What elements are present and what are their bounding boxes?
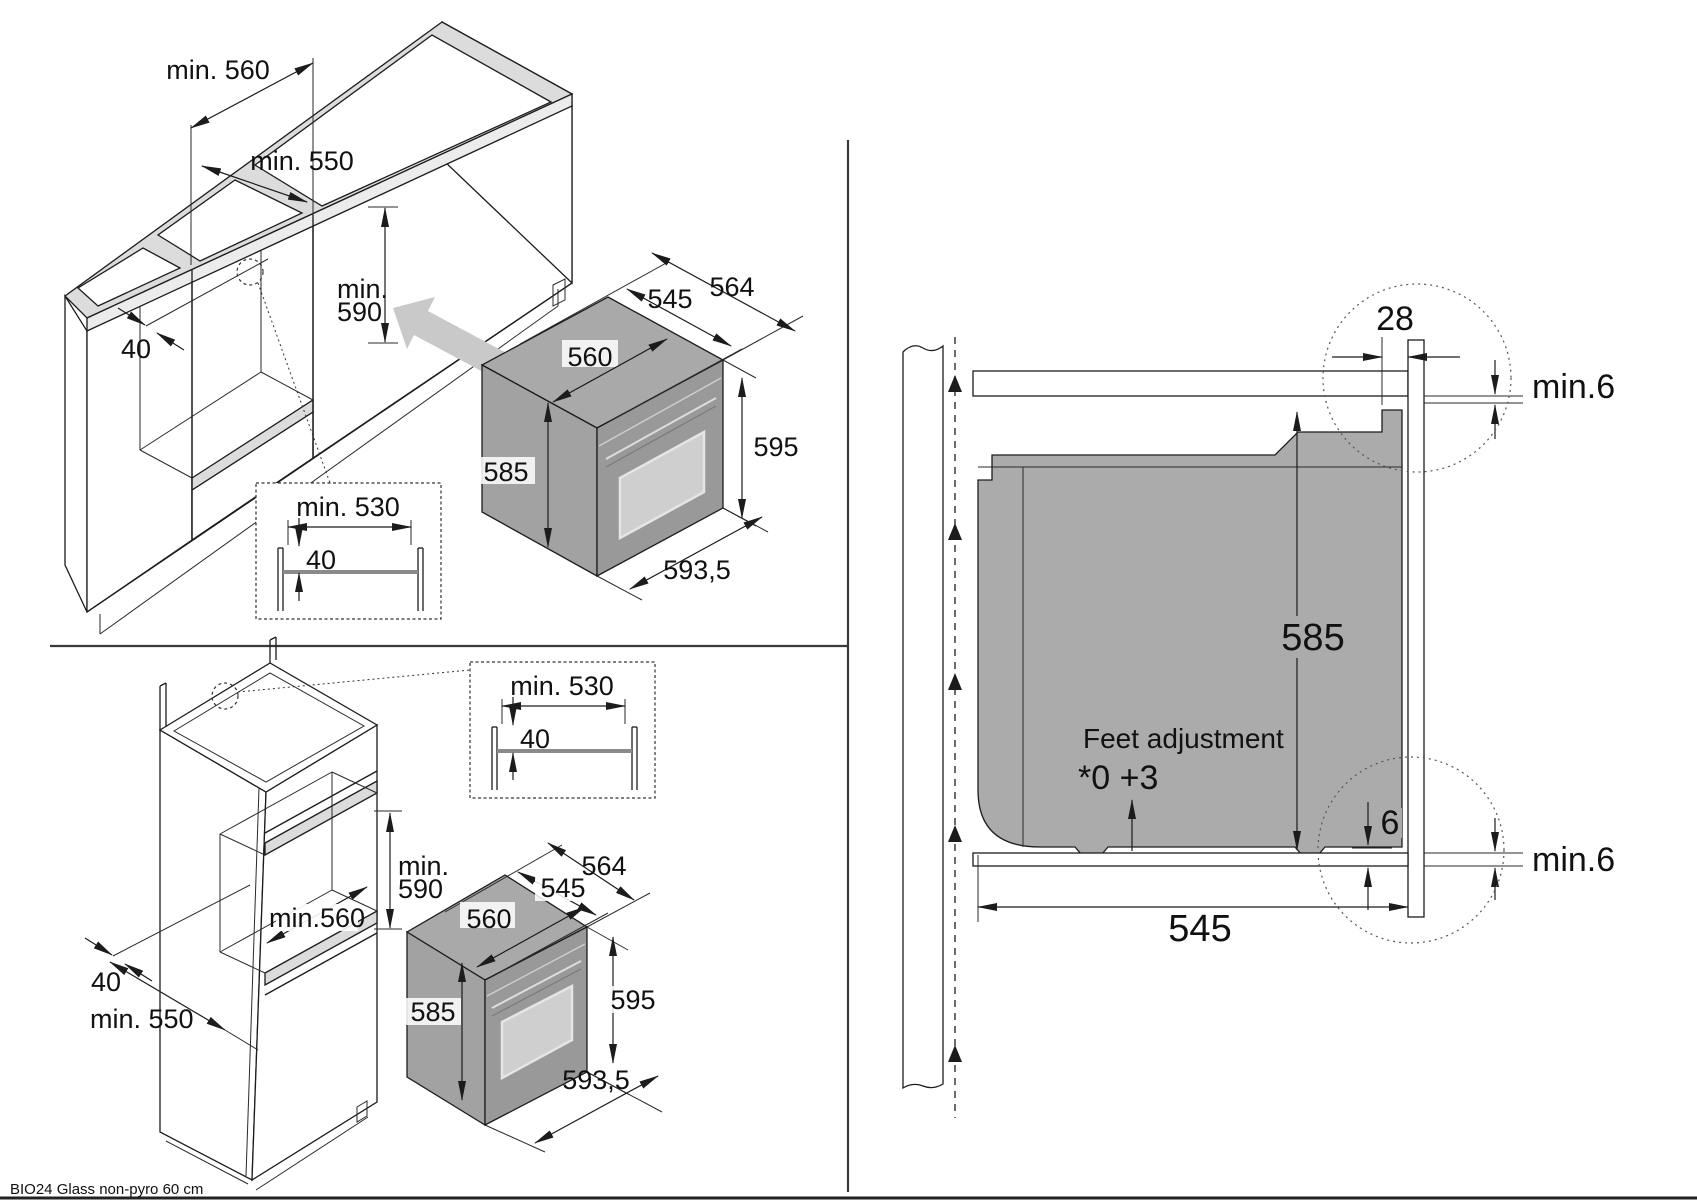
tall-cabinet-left-face [160,730,266,1180]
svg-text:593,5: 593,5 [562,1065,630,1095]
door-front-frame [1408,340,1424,917]
svg-text:595: 595 [753,432,798,462]
svg-text:585: 585 [483,457,528,487]
dim-tall-niche-height: min. 590 [374,811,449,929]
svg-text:min.6: min.6 [1532,368,1615,406]
rail-detail-box: min. 530 40 [256,483,441,619]
svg-text:40: 40 [121,334,151,364]
undercounter-installation-view: min. 560 min. 550 min. 590 40 min. 53 [65,22,803,634]
cabinet-left-end-face [65,296,87,612]
dim-bottom-clearance: min.6 [1424,818,1615,900]
cross-section-view: 28 min.6 585 Feet adjustment *0 +3 [903,284,1615,1118]
svg-text:545: 545 [1168,908,1231,950]
svg-text:585: 585 [1281,617,1344,659]
svg-text:Feet adjustment: Feet adjustment [1083,723,1284,754]
bottom-shelf [973,853,1408,866]
svg-text:min. 550: min. 550 [250,146,354,176]
installation-diagram-page: min. 560 min. 550 min. 590 40 min. 53 [0,0,1697,1200]
product-label: BIO24 Glass non-pyro 60 cm [10,1181,203,1198]
svg-text:590: 590 [337,297,382,327]
rail-detail-box: min. 530 40 [470,662,655,798]
svg-text:6: 6 [1381,804,1400,842]
tall-unit-installation-view: min. 590 min.560 40 min. 550 min. 530 [85,637,662,1190]
dim-top-clearance: min.6 [1424,360,1615,439]
svg-text:590: 590 [398,874,443,904]
dim-body-depth: 545 [978,855,1408,950]
svg-text:min. 530: min. 530 [296,492,400,522]
svg-text:40: 40 [520,724,550,754]
svg-text:min. 530: min. 530 [510,671,614,701]
svg-text:min.6: min.6 [1532,841,1615,879]
svg-text:564: 564 [581,851,626,881]
detail-indicator-circle [237,259,263,285]
svg-text:*0 +3: *0 +3 [1078,759,1158,797]
svg-text:545: 545 [540,873,585,903]
svg-text:593,5: 593,5 [663,555,731,585]
svg-text:min. 560: min. 560 [166,55,270,85]
diagram-canvas: min. 560 min. 550 min. 590 40 min. 53 [0,0,1697,1200]
svg-text:595: 595 [610,985,655,1015]
svg-text:564: 564 [709,272,754,302]
worktop [973,371,1408,396]
svg-text:40: 40 [91,967,121,997]
wall-panel [903,346,943,1088]
svg-text:min. 550: min. 550 [90,1004,194,1034]
svg-text:min.560: min.560 [269,903,365,933]
svg-text:585: 585 [410,997,455,1027]
svg-text:40: 40 [306,545,336,575]
svg-text:545: 545 [647,284,692,314]
oven-isometric [482,297,723,576]
svg-text:28: 28 [1376,300,1414,338]
svg-text:560: 560 [466,904,511,934]
svg-text:560: 560 [567,342,612,372]
